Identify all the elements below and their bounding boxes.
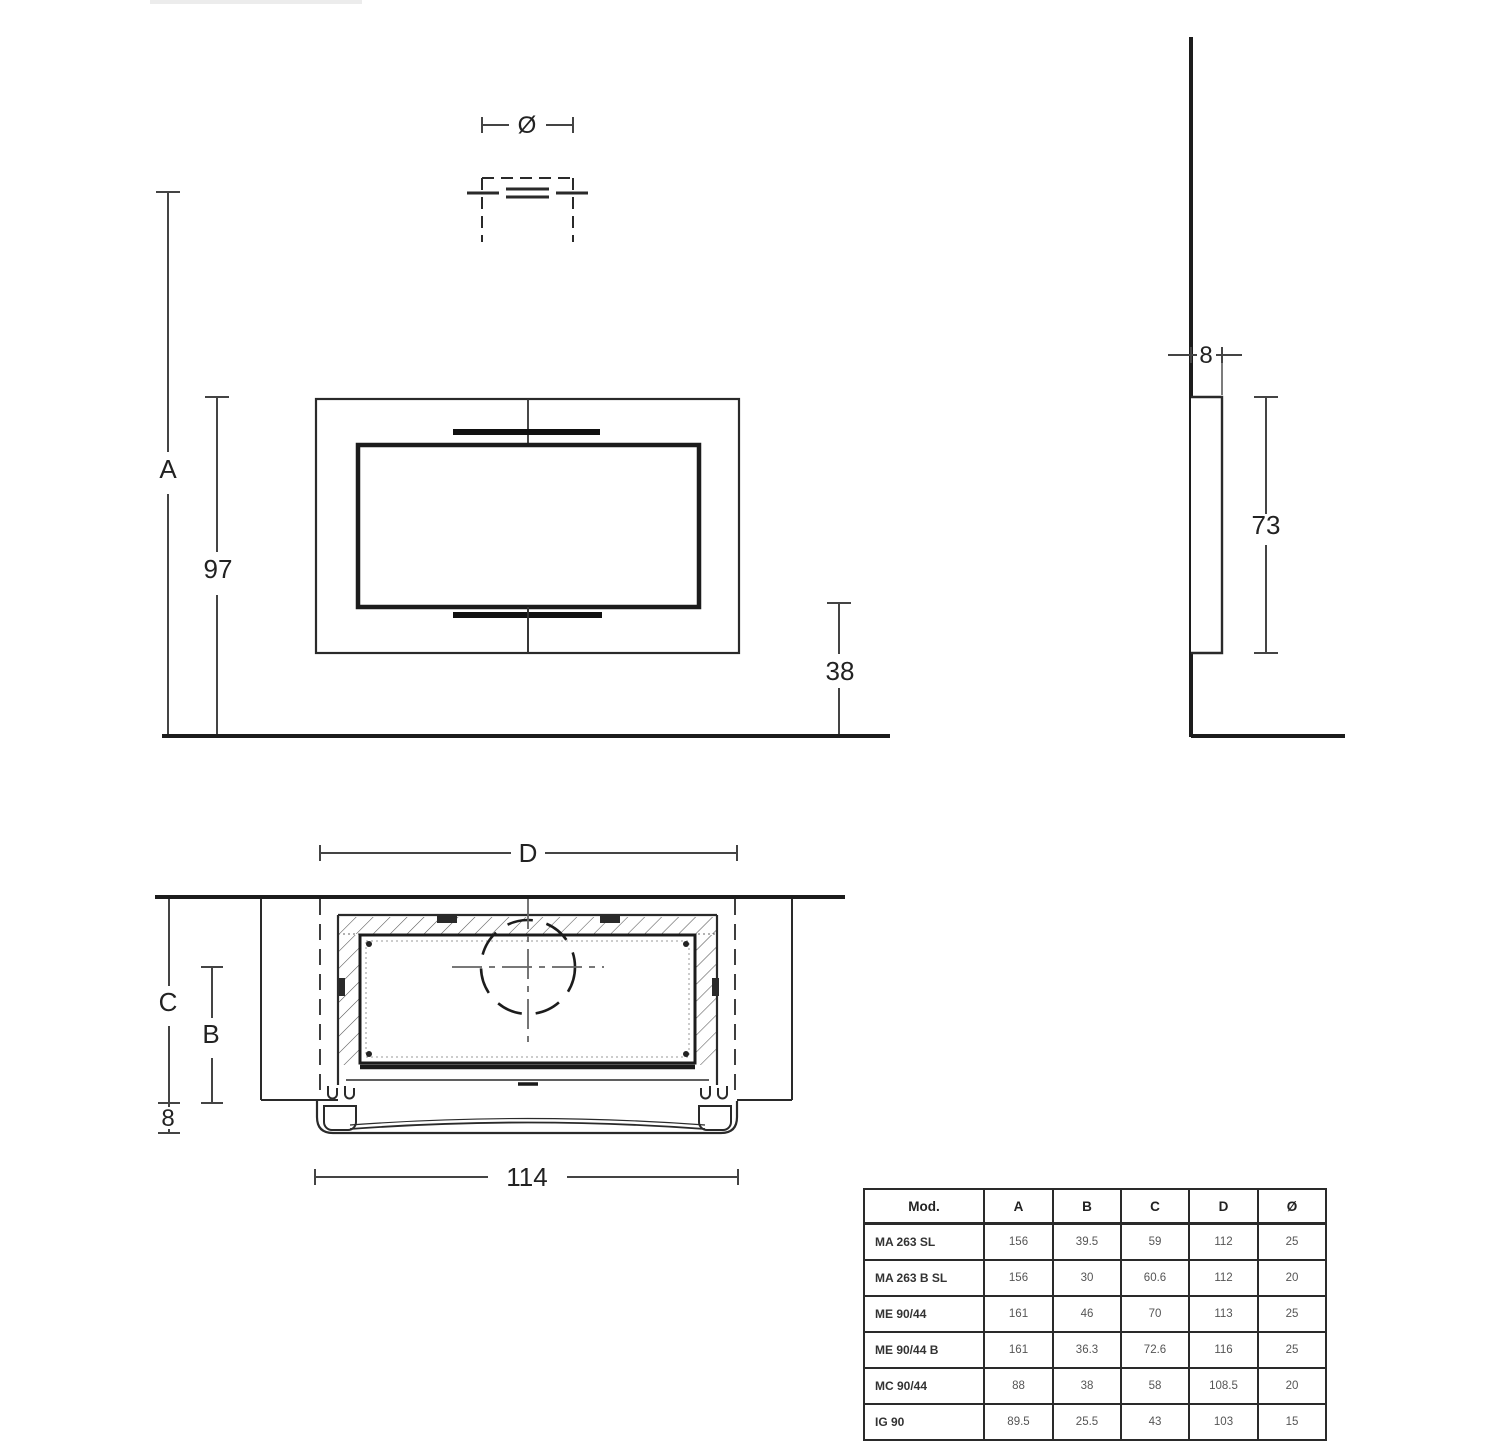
- dim-c-label: C: [159, 987, 178, 1017]
- value-b: 30: [1053, 1260, 1121, 1296]
- value-b: 39.5: [1053, 1224, 1121, 1261]
- table-row: ME 90/44 161 46 70 113 25: [864, 1296, 1326, 1332]
- value-c: 70: [1121, 1296, 1189, 1332]
- front-top-vent-bar: [453, 429, 600, 435]
- value-d: 116: [1189, 1332, 1258, 1368]
- value-d: 113: [1189, 1296, 1258, 1332]
- value-a: 156: [984, 1224, 1053, 1261]
- dim-38-label: 38: [826, 656, 855, 686]
- dim-8-plan-label: 8: [161, 1105, 174, 1132]
- value-d: 108.5: [1189, 1368, 1258, 1404]
- value-c: 58: [1121, 1368, 1189, 1404]
- value-c: 72.6: [1121, 1332, 1189, 1368]
- value-b: 25.5: [1053, 1404, 1121, 1440]
- value-diameter: 25: [1258, 1332, 1326, 1368]
- value-c: 59: [1121, 1224, 1189, 1261]
- model-name: MA 263 SL: [864, 1224, 984, 1261]
- dim-114-label: 114: [506, 1162, 547, 1192]
- dim-97-label: 97: [204, 554, 233, 584]
- col-header-d: D: [1189, 1189, 1258, 1224]
- value-diameter: 15: [1258, 1404, 1326, 1440]
- value-diameter: 25: [1258, 1224, 1326, 1261]
- cropped-content-remnant: [150, 0, 362, 4]
- plan-right-wall-hatch: [696, 935, 717, 1065]
- model-name: MC 90/44: [864, 1368, 984, 1404]
- value-c: 60.6: [1121, 1260, 1189, 1296]
- technical-drawing-page: Ø A 9: [0, 0, 1500, 1427]
- value-d: 112: [1189, 1224, 1258, 1261]
- plan-left-corner-bracket: [324, 1086, 356, 1130]
- spec-table-container: Mod. A B C D Ø MA 263 SL 156 39.5 59 112…: [863, 1188, 1327, 1441]
- plan-front-panel: [317, 1101, 737, 1133]
- value-a: 161: [984, 1296, 1053, 1332]
- value-d: 112: [1189, 1260, 1258, 1296]
- dim-d-label: D: [519, 838, 538, 868]
- value-b: 46: [1053, 1296, 1121, 1332]
- table-row: MA 263 B SL 156 30 60.6 112 20: [864, 1260, 1326, 1296]
- dim-a-label: A: [159, 454, 177, 484]
- front-firebox-glass: [358, 445, 699, 607]
- flue-stub: [467, 178, 588, 242]
- table-row: ME 90/44 B 161 36.3 72.6 116 25: [864, 1332, 1326, 1368]
- dim-b-label: B: [202, 1019, 219, 1049]
- value-c: 43: [1121, 1404, 1189, 1440]
- col-header-mod: Mod.: [864, 1189, 984, 1224]
- plan-right-corner-bracket: [699, 1086, 731, 1130]
- value-a: 156: [984, 1260, 1053, 1296]
- model-name: ME 90/44 B: [864, 1332, 984, 1368]
- front-view: Ø A 9: [156, 112, 890, 736]
- plan-view: D: [155, 838, 845, 1192]
- diameter-dim-label: Ø: [518, 112, 537, 139]
- model-name: MA 263 B SL: [864, 1260, 984, 1296]
- value-a: 161: [984, 1332, 1053, 1368]
- table-row: MA 263 SL 156 39.5 59 112 25: [864, 1224, 1326, 1261]
- table-row: IG 90 89.5 25.5 43 103 15: [864, 1404, 1326, 1440]
- col-header-c: C: [1121, 1189, 1189, 1224]
- value-diameter: 25: [1258, 1296, 1326, 1332]
- value-diameter: 20: [1258, 1368, 1326, 1404]
- plan-front-frame: [346, 1067, 709, 1084]
- col-header-diameter: Ø: [1258, 1189, 1326, 1224]
- spec-table-header-row: Mod. A B C D Ø: [864, 1189, 1326, 1224]
- model-name: IG 90: [864, 1404, 984, 1440]
- dim-73-label: 73: [1252, 510, 1281, 540]
- value-b: 38: [1053, 1368, 1121, 1404]
- side-body-profile: [1191, 397, 1222, 653]
- value-d: 103: [1189, 1404, 1258, 1440]
- plan-left-wall-hatch: [339, 935, 360, 1065]
- dim-8-side-label: 8: [1199, 342, 1212, 369]
- col-header-b: B: [1053, 1189, 1121, 1224]
- table-row: MC 90/44 88 38 58 108.5 20: [864, 1368, 1326, 1404]
- value-a: 88: [984, 1368, 1053, 1404]
- spec-table: Mod. A B C D Ø MA 263 SL 156 39.5 59 112…: [863, 1188, 1327, 1441]
- value-b: 36.3: [1053, 1332, 1121, 1368]
- col-header-a: A: [984, 1189, 1053, 1224]
- model-name: ME 90/44: [864, 1296, 984, 1332]
- value-a: 89.5: [984, 1404, 1053, 1440]
- side-view: 8 73: [1168, 37, 1345, 737]
- value-diameter: 20: [1258, 1260, 1326, 1296]
